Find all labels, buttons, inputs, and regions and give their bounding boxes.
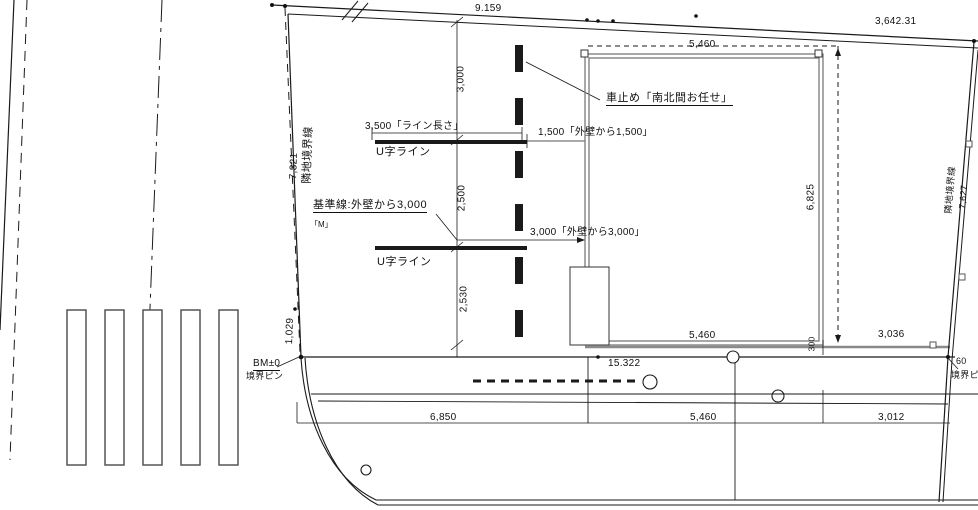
label-boundary-pin-left: 境界ピン — [246, 372, 283, 382]
dim-from-wall-1500: 1,500「外壁から1,500」 — [538, 127, 653, 138]
label-left-boundary: 隣地境界線 — [301, 126, 315, 184]
corner-marker — [815, 50, 822, 57]
dim-vertical-2530: 2,530 — [459, 286, 470, 313]
dim-line-length: 3,500「ライン長さ」 — [365, 121, 464, 132]
label-u-line-1: U字ライン — [376, 146, 430, 158]
dim-60: 60 — [956, 357, 967, 367]
dim-building-height: 6,825 — [806, 184, 817, 211]
dim-vertical-2500: 2,500 — [457, 185, 468, 212]
dim-building-width-bottom: 5,460 — [689, 330, 716, 341]
label-boundary-pin-right: 境界ピン — [951, 371, 978, 381]
site-plan-drawing: 9.159 3,642.31 5,460 車止め「南北間お任せ」 3,500「ラ… — [0, 0, 978, 510]
dim-offset-south: 300 — [807, 336, 816, 351]
dim-bottom-5460: 5,460 — [690, 412, 717, 423]
road-dashed-line — [10, 0, 27, 460]
label-u-line-2: U字ライン — [377, 256, 431, 268]
dim-top-left: 9.159 — [475, 3, 502, 14]
dim-bottom-6850: 6,850 — [430, 412, 457, 423]
site-plan-linework — [0, 0, 978, 510]
road-edge-line — [0, 0, 14, 330]
porch-outline — [570, 267, 609, 345]
dim-offset-right: 3,036 — [878, 329, 905, 340]
crosswalk-stripes — [67, 310, 238, 465]
dim-right-boundary: 7,627 — [958, 185, 970, 210]
note-base-line: 基準線:外壁から3,000 — [313, 199, 427, 213]
left-dim-dashed-line — [285, 8, 300, 352]
dim-south-total: 15.322 — [608, 358, 640, 369]
dim-from-wall-3000: 3,000「外壁から3,000」 — [530, 227, 645, 238]
note-car-stop: 車止め「南北間お任せ」 — [606, 92, 733, 106]
left-boundary-line — [288, 14, 301, 357]
marker-m: 「M」 — [310, 221, 333, 230]
dim-left-boundary-upper: 7,321 — [288, 153, 300, 180]
dim-vertical-3000: 3,000 — [456, 66, 467, 93]
corner-marker — [581, 50, 588, 57]
survey-dots — [270, 3, 976, 359]
dim-top-right: 3,642.31 — [875, 16, 916, 27]
dim-left-boundary-lower: 1,029 — [284, 318, 296, 345]
top-dimension-line — [272, 5, 978, 41]
dim-building-width-top: 5,460 — [689, 39, 716, 50]
label-benchmark: BM±0 — [253, 358, 280, 371]
dim-bottom-3012: 3,012 — [878, 412, 905, 423]
